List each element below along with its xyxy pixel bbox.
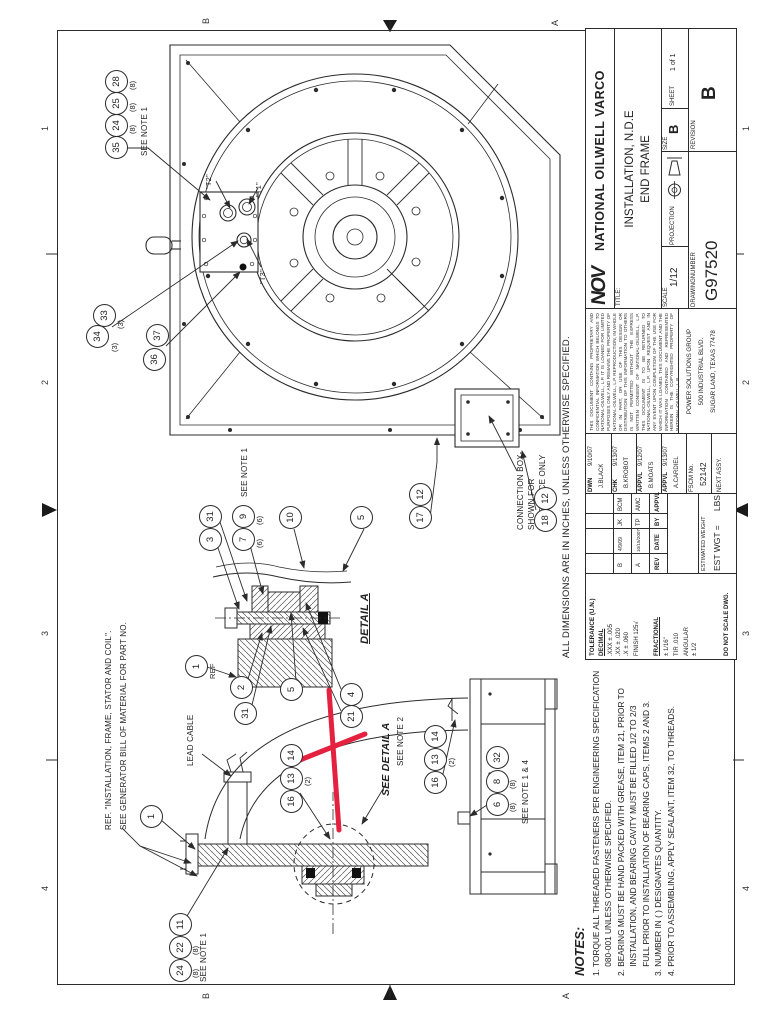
detail-a-view	[213, 563, 351, 687]
rev-b-rev: B	[618, 563, 624, 567]
legal-column: THIS DOCUMENT CONTAINS PROPRIETARY AND C…	[586, 308, 736, 434]
balloon-6: 6	[486, 793, 509, 816]
balloon-37: 37	[146, 324, 169, 347]
balloon-32: 32	[486, 746, 509, 769]
balloon-24: 24	[105, 114, 128, 137]
see-note-1-detail: SEE NOTE 1	[240, 448, 249, 497]
see-note-1-4: SEE NOTE 1 & 4	[521, 760, 530, 824]
tolerance-xxx: .XXX ± .005	[608, 624, 614, 656]
nov-logo: NOV	[588, 266, 611, 307]
notes-heading: NOTES:	[572, 656, 587, 976]
qty-24-side: (8)	[191, 969, 200, 978]
see-note-1-side: SEE NOTE 1	[199, 933, 208, 982]
terminal-t1-label: "T1"	[254, 182, 263, 197]
do-not-scale: DO NOT SCALE DWG.	[724, 593, 730, 656]
tolerance-angular-label: ANGULAR	[684, 627, 690, 656]
note-line-4: INSTALLATION, AND BEARING CAVITY MUST BE…	[627, 656, 639, 976]
rev-a-rev: A	[636, 563, 642, 567]
tolerance-tir: TIR .010	[674, 633, 680, 656]
fscm-label: FSCM No.	[689, 464, 695, 492]
drawing-title-line1: INSTALLATION, N.D.E	[624, 29, 636, 309]
qty-6: (8)	[508, 803, 517, 812]
title-block: TOLERANCE (U.N.) DECIMAL .XXX ± .005 .XX…	[585, 28, 737, 660]
tolerance-block: TOLERANCE (U.N.) DECIMAL .XXX ± .005 .XX…	[586, 573, 736, 659]
tolerance-decimal-label: DECIMAL	[599, 629, 605, 656]
rev-b-by: JK	[618, 519, 624, 526]
drawing-page: 4 3 2 1 4 3 2 1 B A B A	[0, 0, 768, 1024]
address-line3: SUGAR LAND, TEXAS 77478	[710, 309, 717, 434]
balloon-3: 3	[199, 528, 222, 551]
tolerance-xx: .XX ± .020	[616, 628, 622, 656]
sheet-label: SHEET	[670, 86, 676, 106]
balloon-36: 36	[143, 348, 166, 371]
balloon-17: 17	[409, 506, 432, 529]
dwn-date: 9/10/07	[588, 446, 594, 466]
balloon-12a: 12	[409, 483, 432, 506]
lead-cable-label: LEAD CABLE	[186, 715, 195, 766]
title-label: TITLE:	[616, 288, 622, 306]
rev-a-appvl: AMC	[636, 498, 642, 511]
tolerance-header: TOLERANCE (U.N.)	[589, 598, 596, 656]
top-view	[146, 45, 560, 447]
balloon-31a: 31	[234, 702, 257, 725]
size-label: SIZE	[663, 137, 669, 150]
detail-a-label: DETAIL A	[359, 593, 371, 644]
appvl1-name: B.MOATS	[649, 461, 655, 488]
rev-a-date: 10/15/2007	[636, 529, 641, 552]
balloon-10: 10	[279, 506, 302, 529]
dwn-name: J.BLACK	[599, 464, 605, 488]
address-line2: 500 INDUSTRIAL BLVD.	[698, 309, 705, 434]
balloon-2: 2	[230, 676, 253, 699]
revision-history: B 4/9/09 JK BCM A 10/15/2007 TP AMC REV …	[586, 493, 736, 574]
appvl2-date: 9/13/07	[663, 446, 669, 466]
note-line-6: 3. NUMBER IN ( ) DESIGNATES QUANTITY.	[652, 656, 664, 976]
drawing-title-line2: END FRAME	[640, 29, 652, 309]
appvl2-name: A.CARDIEL	[674, 456, 680, 488]
rev-header-appvl: APPVL	[655, 492, 661, 512]
note-line-7: 4. PRIOR TO ASSEMBLING, APPLY SEALANT, I…	[665, 656, 677, 976]
balloon-8: 8	[486, 770, 509, 793]
appvl1-date: 9/12/07	[638, 446, 644, 466]
chk-name: B.KROBOT	[624, 457, 630, 488]
drawing-number-label: DRAWINGNUMBER	[691, 252, 697, 307]
rev-b-date: 4/9/09	[618, 537, 624, 551]
balloon-34: 34	[86, 325, 109, 348]
address-line1: POWER SOLUTIONS GROUP	[686, 309, 693, 434]
see-note-2-callout: SEE NOTE 2	[396, 717, 405, 766]
rev-header-rev: REV	[655, 558, 661, 570]
size-value: B	[666, 125, 681, 134]
qty-7: (6)	[255, 539, 264, 548]
qty-8: (8)	[508, 780, 517, 789]
connection-box-bracket	[455, 389, 519, 447]
revision-value: B	[699, 86, 721, 100]
notes-block: NOTES: 1. TORQUE ALL THREADED FASTENERS …	[572, 656, 677, 976]
handle-fitting	[146, 237, 181, 254]
rev-b-appvl: BCM	[618, 498, 624, 511]
brand-name: NATIONAL OILWELL VARCO	[593, 70, 607, 251]
tolerance-angular-value: ± 1/2	[692, 643, 698, 656]
balloon-5a: 5	[350, 506, 373, 529]
terminal-t3-label: "T3"	[258, 269, 267, 284]
see-detail-a-callout: SEE DETAIL A	[380, 723, 392, 796]
rev-header-by: BY	[655, 518, 661, 526]
balloon-25: 25	[105, 92, 128, 115]
qty-9: (6)	[255, 516, 264, 525]
estimated-weight-label: ESTIMATED WEIGHT	[701, 516, 707, 571]
balloon-16b: 16	[424, 771, 447, 794]
ref-note-line1: REF. "INSTALLATION, FRAME, STATOR AND CO…	[104, 630, 113, 830]
next-assy-label: NEXT ASSY.	[717, 458, 723, 492]
appvl2-label: APPVL	[663, 472, 669, 492]
balloon-16a: 16	[280, 790, 303, 813]
rev-header-date: DATE	[655, 534, 661, 550]
drawing-number-value: G97520	[702, 241, 722, 302]
balloon-14a: 14	[280, 744, 303, 767]
balloon-24-side: 24	[169, 959, 192, 982]
balloon-13a: 13	[280, 767, 303, 790]
chk-date: 9/13/07	[613, 446, 619, 466]
ref-note-line2: SEE GENERATOR BILL OF MATERIAL FOR PART …	[119, 622, 128, 830]
balloon-7: 7	[232, 528, 255, 551]
tolerance-finish: FINISH 125√	[634, 621, 640, 656]
tolerance-fractional-value: ± 1/16"	[664, 637, 670, 656]
qty-13a: (2)	[303, 777, 312, 786]
estimated-weight-value: EST WGT = LBS	[712, 495, 722, 571]
scale-label: SCALE	[663, 287, 669, 307]
scale-value: 1/12	[669, 268, 680, 287]
drawing-sheet: 4 3 2 1 4 3 2 1 B A B A	[0, 0, 768, 1024]
brand-title-column: NOV NATIONAL OILWELL VARCO TITLE: INSTAL…	[586, 29, 736, 309]
balloon-35: 35	[105, 136, 128, 159]
note-line-1: 1. TORQUE ALL THREADED FASTENERS PER ENG…	[590, 656, 602, 976]
balloon-13b: 13	[424, 748, 447, 771]
connection-box-note-line1: CONNECTION BOX-	[516, 451, 525, 530]
note-line-5: FULL PRIOR TO INSTALLATION OF BEARING CA…	[640, 656, 652, 976]
balloon-9: 9	[232, 505, 255, 528]
qty-13b: (2)	[447, 758, 456, 767]
balloon-12b: 12	[534, 487, 557, 510]
lead-cable-conduit	[224, 752, 251, 844]
balloon-1-detail: 1	[185, 655, 208, 678]
qty-28: (8)	[128, 81, 137, 90]
terminal-t2-label: "T2"	[204, 174, 213, 189]
proprietary-notice: THIS DOCUMENT CONTAINS PROPRIETARY AND C…	[589, 313, 681, 431]
projection-symbol	[665, 155, 684, 199]
balloon-18: 18	[534, 509, 557, 532]
fscm-number: 52142	[698, 462, 708, 486]
balloon-31b: 31	[199, 505, 222, 528]
see-note-1-topview: SEE NOTE 1	[140, 107, 149, 156]
rev-a-by: TP	[636, 518, 642, 526]
qty-34: (3)	[110, 343, 119, 352]
dimensions-note: ALL DIMENSIONS ARE IN INCHES, UNLESS OTH…	[561, 336, 572, 658]
projection-label: PROJECTION	[670, 206, 676, 245]
balloon-28: 28	[105, 70, 128, 93]
balloon-1-side: 1	[140, 805, 163, 828]
balloon-14b: 14	[424, 725, 447, 748]
chk-label: CHK	[613, 479, 619, 492]
balloon-22: 22	[169, 936, 192, 959]
tolerance-x: .X ± .060	[624, 632, 630, 656]
balloon-21: 21	[340, 705, 363, 728]
dwn-label: DWN	[588, 478, 594, 492]
tolerance-fractional-label: FRACTIONAL	[654, 617, 660, 656]
balloon-33: 33	[93, 304, 116, 327]
appvl1-label: APPVL	[638, 472, 644, 492]
qty-25: (8)	[128, 103, 137, 112]
qty-33: (3)	[116, 320, 125, 329]
balloon-11: 11	[169, 913, 192, 936]
ref-tag-detail: REF	[208, 663, 217, 679]
note-line-3: 2. BEARING MUST BE HAND PACKED WITH GREA…	[615, 656, 627, 976]
sheet-value: 1 of 1	[670, 53, 677, 71]
qty-22: (8)	[191, 946, 200, 955]
qty-24: (8)	[128, 125, 137, 134]
revision-label: REVISION	[691, 120, 697, 149]
balloon-5b: 5	[280, 678, 303, 701]
note-line-2: 080-001 UNLESS OTHERWISE SPECIFIED.	[602, 656, 614, 976]
approvals-column: DWN 9/10/07 J.BLACK CHK 9/13/07 B.KROBOT…	[586, 433, 736, 494]
balloon-4: 4	[340, 683, 363, 706]
